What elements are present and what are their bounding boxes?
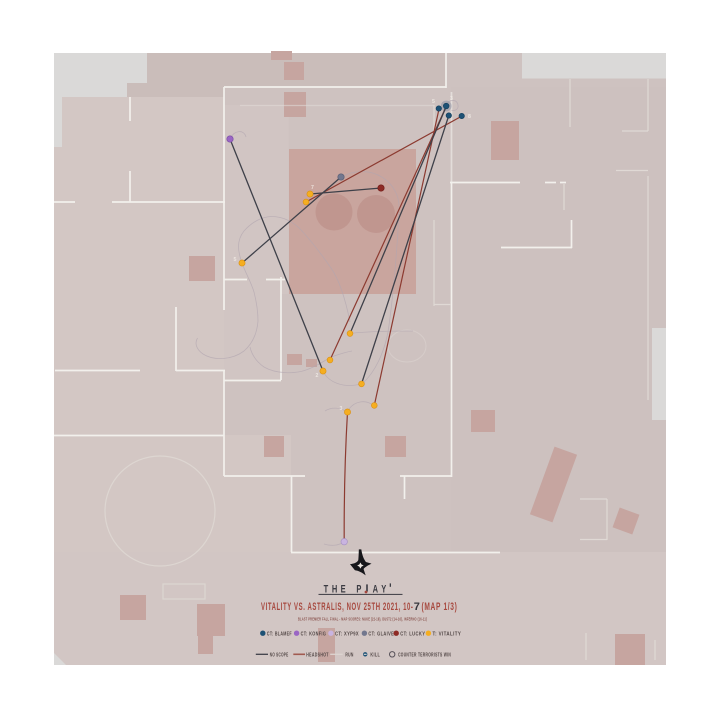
- svg-text:7: 7: [311, 185, 314, 191]
- svg-text:NO SCOPE: NO SCOPE: [270, 653, 289, 659]
- svg-text:3: 3: [450, 96, 453, 102]
- svg-text:5: 5: [234, 257, 237, 263]
- svg-text:KILL: KILL: [370, 653, 380, 659]
- svg-text:VITALITY VS. ASTRALIS, NOV 25T: VITALITY VS. ASTRALIS, NOV 25TH 2021, 10…: [261, 601, 414, 613]
- svg-text:BLAST PREMIER FALL FINAL - MAP: BLAST PREMIER FALL FINAL - MAP SCORES: N…: [298, 617, 427, 622]
- svg-text:RUN: RUN: [345, 653, 353, 659]
- svg-text:CT: KONFIG: CT: KONFIG: [301, 632, 327, 638]
- svg-text:HEADSHOT: HEADSHOT: [306, 653, 329, 659]
- svg-text:5: 5: [432, 99, 435, 105]
- svg-text:3: 3: [340, 406, 343, 412]
- svg-text:T: VITALITY: T: VITALITY: [433, 632, 462, 638]
- svg-text:(MAP 1/3): (MAP 1/3): [422, 601, 458, 613]
- svg-text:2: 2: [316, 373, 319, 379]
- svg-text:8: 8: [468, 114, 471, 120]
- svg-text:COUNTER TERRORISTS WIN: COUNTER TERRORISTS WIN: [398, 653, 451, 659]
- svg-text:CT: BLAMEF: CT: BLAMEF: [267, 632, 292, 638]
- svg-text:CT: XYP9X: CT: XYP9X: [335, 632, 359, 638]
- svg-text:CT: GLAIVE: CT: GLAIVE: [368, 632, 394, 638]
- svg-text:7: 7: [414, 601, 420, 613]
- svg-text:CT: LUCKY: CT: LUCKY: [400, 632, 425, 638]
